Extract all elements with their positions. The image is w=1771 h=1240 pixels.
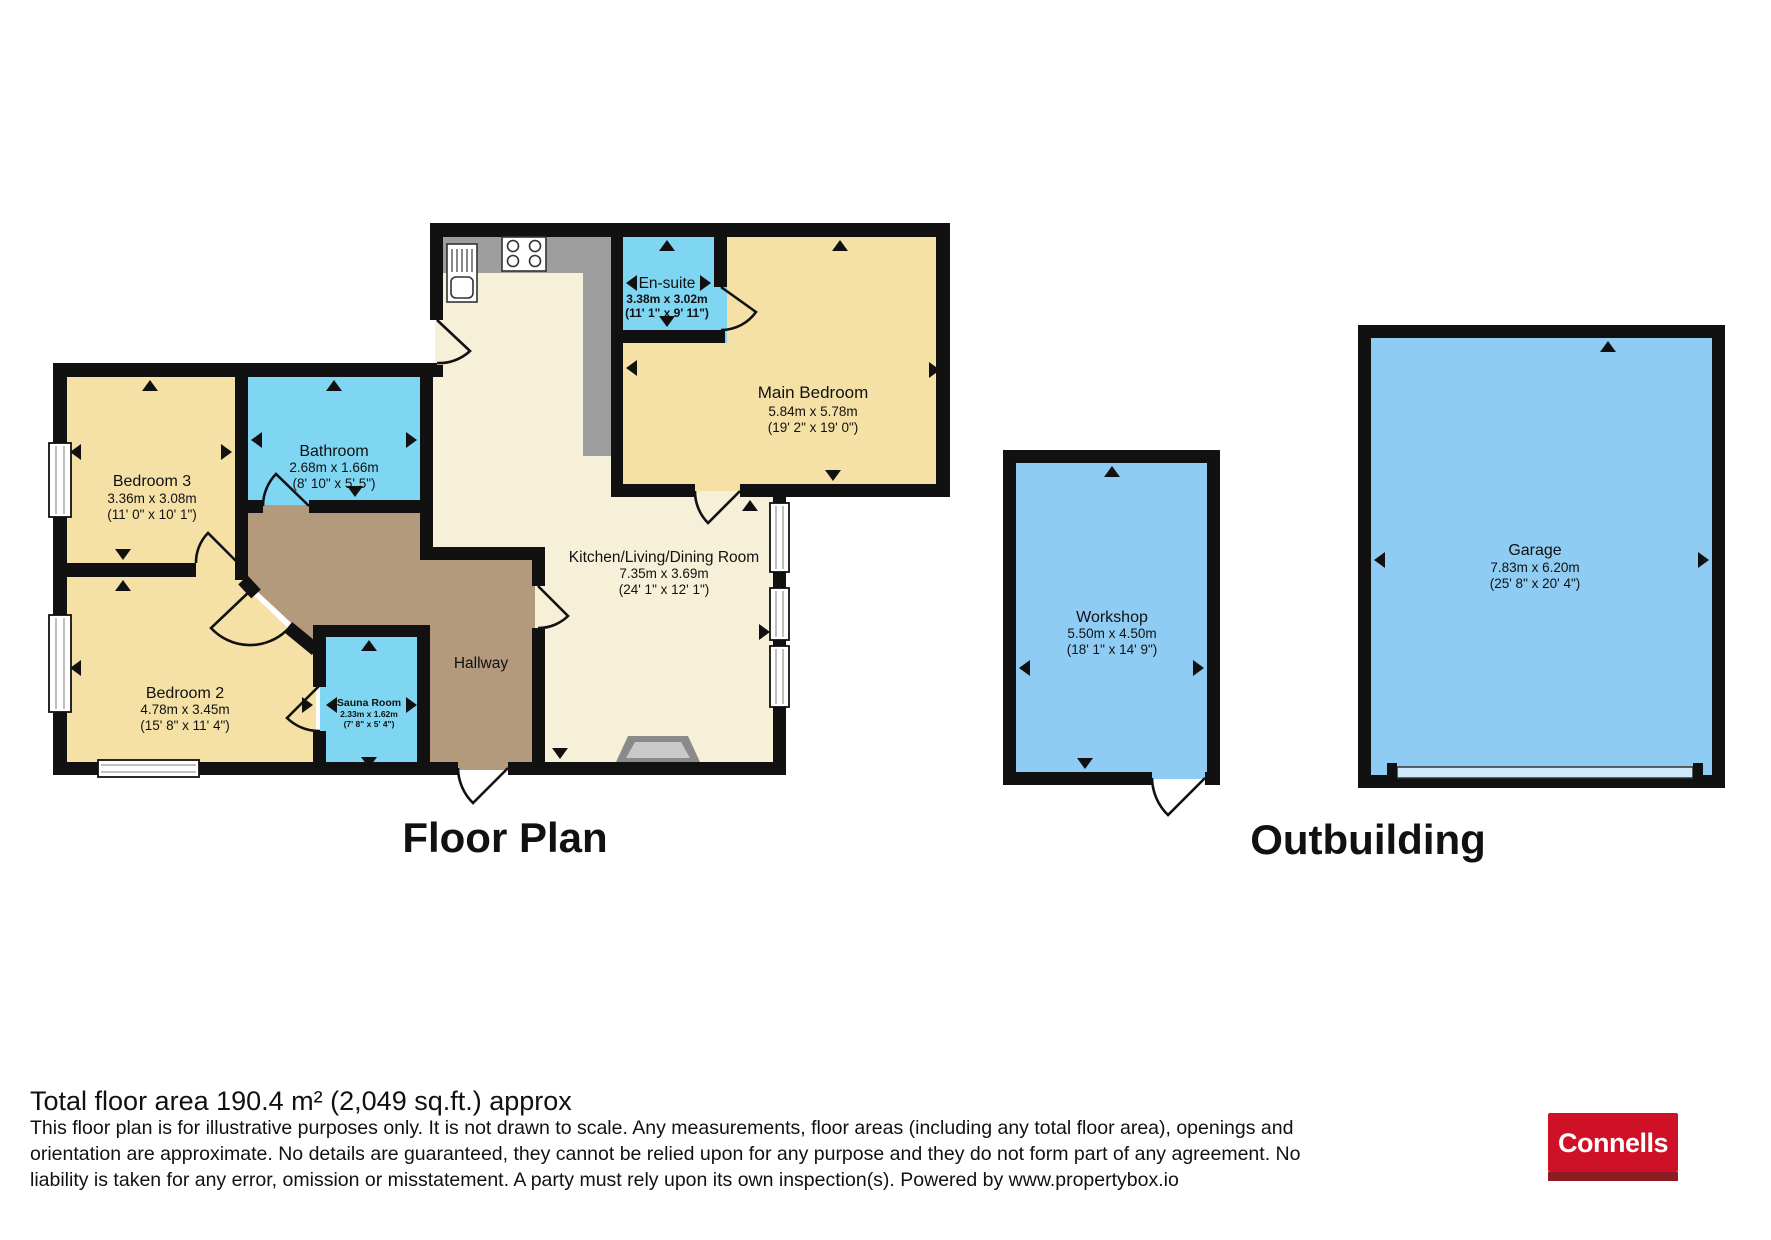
room-metric: 7.83m x 6.20m xyxy=(1490,560,1579,575)
room-imperial: (18' 1" x 14' 9") xyxy=(1067,642,1158,657)
fireplace-inner xyxy=(626,742,690,758)
room-imperial: (8' 10" x 5' 5") xyxy=(292,476,375,491)
disclaimer-line: liability is taken for any error, omissi… xyxy=(30,1169,1179,1191)
room-label-main-bedroom: Main Bedroom 5.84m x 5.78m (19' 2" x 19'… xyxy=(758,383,869,435)
room-metric: 5.50m x 4.50m xyxy=(1067,626,1156,641)
room-imperial: (15' 8" x 11' 4") xyxy=(140,718,230,733)
room-label-bedroom2: Bedroom 2 4.78m x 3.45m (15' 8" x 11' 4"… xyxy=(140,685,230,733)
room-imperial: (24' 1" x 12' 1") xyxy=(619,582,710,597)
disclaimer-line: This floor plan is for illustrative purp… xyxy=(30,1117,1293,1139)
bathroom-floor xyxy=(242,370,433,513)
room-label-hallway: Hallway xyxy=(454,655,509,672)
floorplan-page: Bedroom 3 3.36m x 3.08m (11' 0" x 10' 1"… xyxy=(0,0,1771,1240)
door-swing-icon xyxy=(1152,778,1205,815)
window xyxy=(98,760,199,777)
disclaimer-line: orientation are approximate. No details … xyxy=(30,1143,1301,1165)
room-metric: 3.36m x 3.08m xyxy=(107,491,196,506)
room-metric: 2.68m x 1.66m xyxy=(289,460,378,475)
logo-text: Connells xyxy=(1558,1128,1668,1158)
door-swing-icon xyxy=(458,768,508,803)
room-imperial: (25' 8" x 20' 4") xyxy=(1490,576,1581,591)
room-imperial: (11' 1" x 9' 11") xyxy=(625,306,709,320)
footer: Total floor area 190.4 m² (2,049 sq.ft.)… xyxy=(30,1086,1301,1191)
sink-icon xyxy=(447,244,477,302)
room-imperial: (11' 0" x 10' 1") xyxy=(107,507,197,522)
room-name: Hallway xyxy=(454,655,509,672)
room-name: Main Bedroom xyxy=(758,383,869,402)
room-label-bedroom3: Bedroom 3 3.36m x 3.08m (11' 0" x 10' 1"… xyxy=(107,473,197,522)
window xyxy=(770,588,789,640)
room-label-bathroom: Bathroom 2.68m x 1.66m (8' 10" x 5' 5") xyxy=(289,443,378,491)
room-label-sauna: Sauna Room 2.33m x 1.62m (7' 8" x 5' 4") xyxy=(337,697,401,729)
room-metric: 5.84m x 5.78m xyxy=(768,404,857,419)
room-name: Kitchen/Living/Dining Room xyxy=(569,549,759,566)
hob-icon xyxy=(502,237,546,271)
window xyxy=(770,646,789,707)
room-metric: 4.78m x 3.45m xyxy=(140,702,229,717)
room-metric: 3.38m x 3.02m xyxy=(626,292,707,306)
room-name: Workshop xyxy=(1076,609,1148,626)
room-metric: 7.35m x 3.69m xyxy=(619,566,708,581)
room-label-workshop: Workshop 5.50m x 4.50m (18' 1" x 14' 9") xyxy=(1067,609,1158,657)
room-imperial: (7' 8" x 5' 4") xyxy=(344,719,395,729)
room-name: Sauna Room xyxy=(337,697,401,709)
room-name: En-suite xyxy=(639,275,696,292)
room-name: Bathroom xyxy=(299,443,368,460)
outbuilding-title: Outbuilding xyxy=(1250,816,1486,863)
floorplan-drawing: Bedroom 3 3.36m x 3.08m (11' 0" x 10' 1"… xyxy=(0,0,1771,1240)
total-floor-area: Total floor area 190.4 m² (2,049 sq.ft.)… xyxy=(30,1086,572,1116)
window xyxy=(770,503,789,572)
room-name: Bedroom 2 xyxy=(146,685,224,702)
room-name: Garage xyxy=(1508,542,1561,559)
room-name: Bedroom 3 xyxy=(113,473,191,490)
window xyxy=(49,443,71,517)
room-metric: 2.33m x 1.62m xyxy=(340,709,398,719)
connells-logo: Connells xyxy=(1548,1113,1678,1181)
floor-plan-title: Floor Plan xyxy=(402,814,607,861)
logo-strip xyxy=(1548,1172,1678,1181)
room-imperial: (19' 2" x 19' 0") xyxy=(768,420,859,435)
window xyxy=(49,615,71,712)
